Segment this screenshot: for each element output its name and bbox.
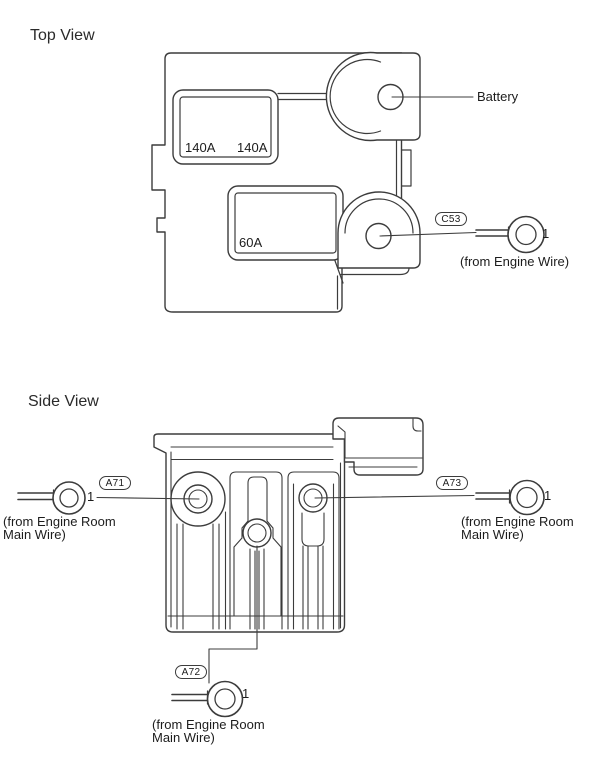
caption-line: Main Wire) [461, 528, 574, 541]
a72-pin-number: 1 [242, 687, 249, 700]
c53-housing-bracket [341, 268, 409, 275]
a73-source-caption: (from Engine Room Main Wire) [461, 515, 574, 541]
side-view-diagram [18, 418, 544, 717]
connector-pill-a73: A73 [436, 476, 468, 490]
ring-terminal-outer [53, 482, 85, 514]
fuse-rating-140a-right: 140A [237, 141, 267, 154]
caption-line: Main Wire) [152, 731, 265, 744]
a71-source-caption: (from Engine Room Main Wire) [3, 515, 116, 541]
a73-ring-terminal [476, 481, 544, 515]
fuse-rating-60a: 60A [239, 236, 262, 249]
a73-pin-number: 1 [544, 489, 551, 502]
connector-pill-a71: A71 [99, 476, 131, 490]
c53-ring-terminal [476, 217, 544, 253]
fusible-link-diagram-page: Top View 140A 140A 60A Battery C53 1 (fr… [0, 0, 601, 777]
ring-terminal-outer [508, 217, 544, 253]
a72-source-caption: (from Engine Room Main Wire) [152, 718, 265, 744]
ring-terminal-outer [510, 481, 544, 515]
a71-ring-terminal [18, 482, 85, 514]
a72-ring-terminal [172, 682, 243, 717]
side-view-title: Side View [28, 394, 99, 410]
top-view-title: Top View [30, 28, 95, 44]
ring-terminal-outer [208, 682, 243, 717]
connector-pill-a72: A72 [175, 665, 207, 679]
battery-label: Battery [477, 90, 518, 103]
a71-pin-number: 1 [87, 490, 94, 503]
c53-terminal-housing [338, 192, 420, 268]
diagram-canvas [0, 0, 601, 777]
right-side-tab [402, 150, 412, 186]
connector-pill-c53: C53 [435, 212, 467, 226]
c53-source-caption: (from Engine Wire) [460, 255, 569, 268]
fuse-rating-140a-left: 140A [185, 141, 215, 154]
caption-line: Main Wire) [3, 528, 116, 541]
c53-pin-number: 1 [542, 227, 549, 240]
